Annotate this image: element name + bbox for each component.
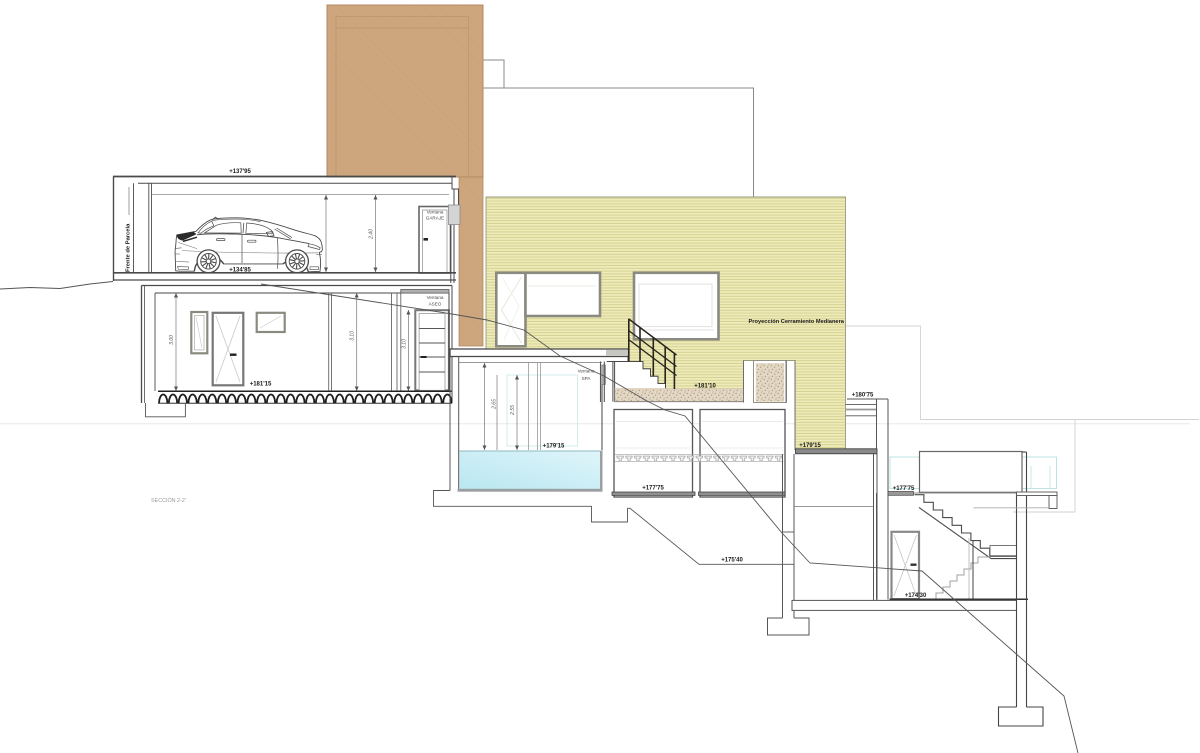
svg-text:+180'75: +180'75 [852, 393, 874, 399]
svg-text:Ventana: Ventana [427, 210, 444, 215]
svg-text:ASEO: ASEO [429, 302, 442, 307]
svg-text:Frente de Parcela: Frente de Parcela [126, 223, 132, 272]
svg-text:+137'95: +137'95 [229, 169, 251, 175]
svg-text:+177'75: +177'75 [642, 486, 664, 492]
svg-text:+181'15: +181'15 [250, 382, 272, 388]
svg-text:3.10: 3.10 [350, 331, 356, 341]
svg-text:SECCIÓN 2-2': SECCIÓN 2-2' [151, 497, 186, 504]
svg-text:+179'15: +179'15 [543, 444, 565, 450]
svg-text:3.00: 3.00 [169, 335, 175, 345]
svg-text:+174'30: +174'30 [905, 593, 927, 599]
svg-text:Proyección Cerramiento Mediane: Proyección Cerramiento Medianera [749, 319, 845, 325]
svg-text:2.40: 2.40 [369, 229, 375, 240]
svg-text:2.55: 2.55 [510, 405, 516, 416]
svg-text:3.10: 3.10 [402, 339, 408, 349]
svg-text:GARAJE: GARAJE [426, 216, 444, 221]
svg-text:Ventana: Ventana [427, 295, 444, 300]
svg-text:+179'15: +179'15 [799, 443, 821, 449]
svg-text:+175'40: +175'40 [721, 558, 743, 564]
svg-text:SPA: SPA [582, 376, 592, 381]
svg-text:+177'75: +177'75 [893, 486, 915, 492]
